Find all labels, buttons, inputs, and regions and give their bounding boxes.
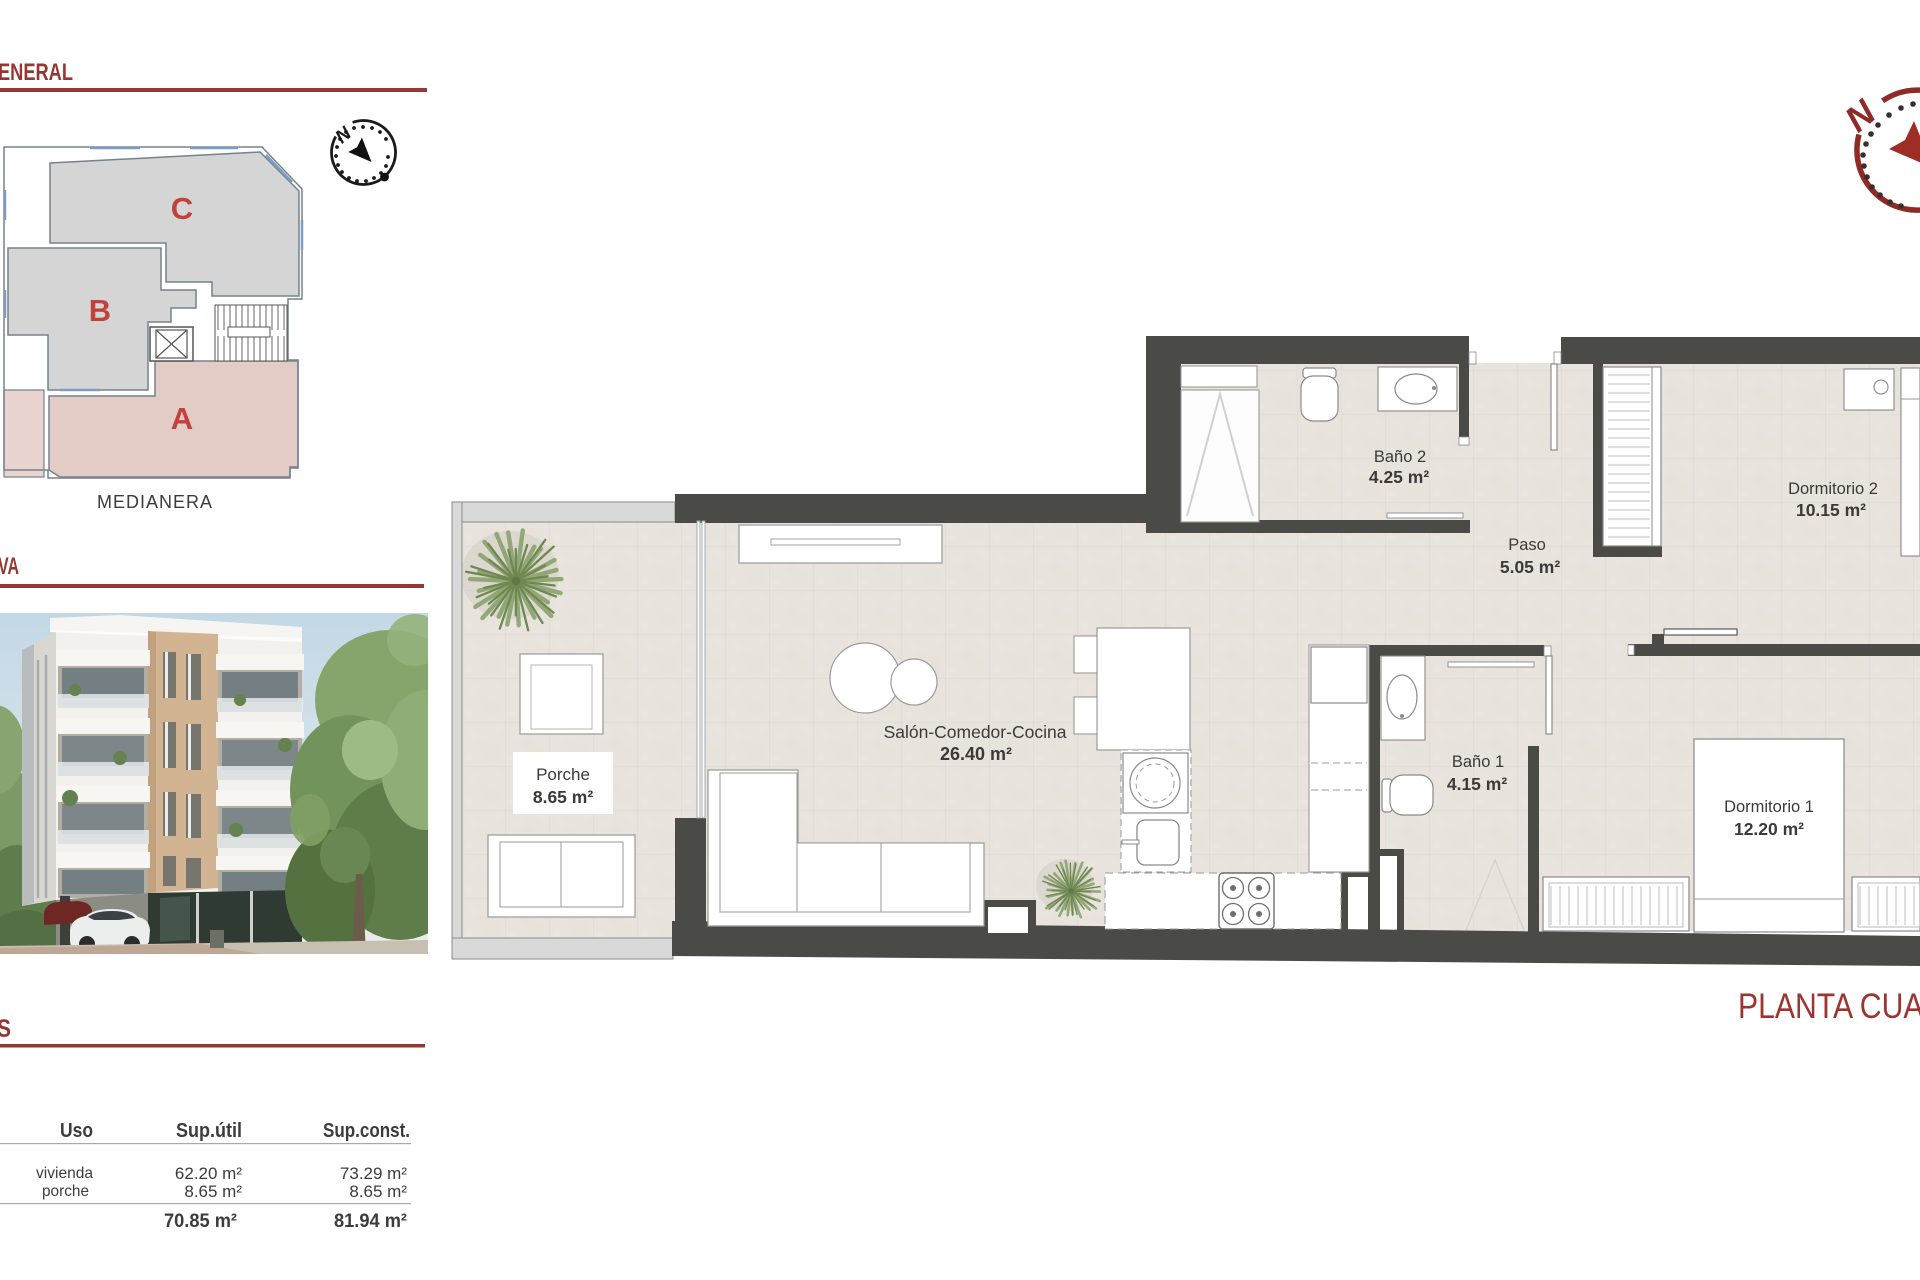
svg-text:B: B <box>89 293 111 328</box>
svg-text:porche: porche <box>42 1183 89 1200</box>
svg-text:Salón-Comedor-Cocina: Salón-Comedor-Cocina <box>884 722 1067 742</box>
svg-text:Porche: Porche <box>536 765 590 784</box>
svg-text:4.15 m²: 4.15 m² <box>1447 774 1507 794</box>
svg-text:N: N <box>332 122 357 148</box>
svg-text:Baño 2: Baño 2 <box>1374 448 1426 466</box>
svg-text:73.29 m²: 73.29 m² <box>340 1164 407 1183</box>
svg-text:8.65 m²: 8.65 m² <box>349 1182 407 1201</box>
svg-text:10.15 m²: 10.15 m² <box>1796 500 1866 520</box>
svg-text:vivienda: vivienda <box>36 1165 93 1182</box>
svg-text:C: C <box>171 191 193 226</box>
svg-text:VA: VA <box>0 553 19 580</box>
svg-text:12.20 m²: 12.20 m² <box>1734 819 1804 839</box>
svg-text:4.25 m²: 4.25 m² <box>1369 467 1429 487</box>
svg-text:MEDIANERA: MEDIANERA <box>97 492 213 512</box>
svg-text:A: A <box>171 401 193 436</box>
svg-text:Uso: Uso <box>60 1120 93 1142</box>
svg-text:ENERAL: ENERAL <box>0 59 73 86</box>
svg-text:PLANTA CUARTA: PLANTA CUARTA <box>1738 987 1920 1026</box>
svg-text:70.85 m²: 70.85 m² <box>164 1211 237 1232</box>
svg-text:8.65 m²: 8.65 m² <box>184 1182 242 1201</box>
svg-text:S: S <box>0 1015 11 1043</box>
svg-text:81.94 m²: 81.94 m² <box>334 1211 407 1232</box>
svg-text:Sup.útil: Sup.útil <box>176 1120 242 1142</box>
svg-text:Dormitorio 1: Dormitorio 1 <box>1724 798 1814 816</box>
svg-text:26.40 m²: 26.40 m² <box>940 744 1012 764</box>
svg-text:N: N <box>1837 91 1884 140</box>
svg-text:Baño 1: Baño 1 <box>1452 753 1504 771</box>
svg-text:Paso: Paso <box>1508 536 1546 554</box>
svg-text:5.05 m²: 5.05 m² <box>1500 557 1560 577</box>
svg-text:Sup.const.: Sup.const. <box>323 1120 410 1142</box>
svg-text:Dormitorio 2: Dormitorio 2 <box>1788 480 1878 498</box>
svg-text:8.65 m²: 8.65 m² <box>533 787 593 807</box>
svg-text:62.20 m²: 62.20 m² <box>175 1164 242 1183</box>
